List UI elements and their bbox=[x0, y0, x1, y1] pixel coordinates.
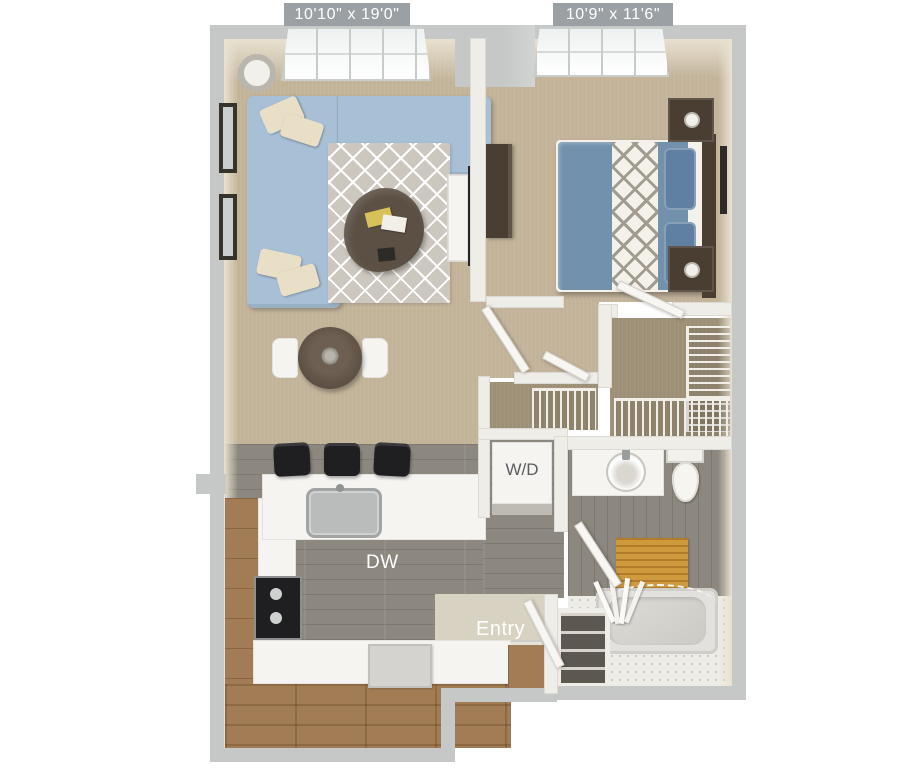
nightstand-icon bbox=[668, 98, 714, 142]
floor-plan: 10'10" x 19'0" 10'9" x 11'6" bbox=[0, 0, 921, 768]
kitchen-sink-icon bbox=[306, 488, 382, 538]
partition-bathroom-west bbox=[554, 436, 568, 532]
living-room-window-icon bbox=[281, 27, 431, 81]
bar-stool-icon bbox=[273, 445, 311, 477]
exterior-wall-bottom-bath bbox=[551, 686, 746, 700]
dishwasher-label: DW bbox=[366, 552, 399, 574]
centerpiece-icon bbox=[320, 346, 340, 366]
wall-column-top-center bbox=[455, 25, 535, 87]
nightstand-icon bbox=[668, 246, 714, 292]
left-wall-pilaster bbox=[196, 474, 226, 494]
bar-stool-icon bbox=[373, 445, 411, 477]
wire-shelf-icon bbox=[614, 398, 730, 436]
entry-label: Entry bbox=[476, 618, 525, 641]
dining-chair-icon bbox=[272, 338, 298, 378]
burner-icon bbox=[270, 612, 282, 624]
table-lamp-icon bbox=[684, 262, 700, 278]
bed-blanket-foot bbox=[558, 142, 612, 290]
partition-bedroom-bottom bbox=[486, 296, 564, 308]
burner-icon bbox=[270, 588, 282, 600]
bar-stool-icon bbox=[324, 446, 360, 476]
exterior-wall-bottom-entry bbox=[441, 688, 557, 702]
partition-bathroom-north bbox=[564, 436, 732, 450]
washer-dryer-icon: W/D bbox=[492, 442, 552, 504]
partition-living-bedroom bbox=[470, 38, 486, 302]
partition-laundry-left bbox=[478, 376, 490, 518]
stove-icon bbox=[254, 576, 302, 640]
bed-pillow-icon bbox=[664, 148, 696, 210]
faucet-icon bbox=[336, 484, 344, 492]
washer-dryer-label: W/D bbox=[492, 460, 552, 480]
tv-console-icon bbox=[447, 174, 469, 262]
exterior-wall-right bbox=[732, 25, 746, 700]
table-lamp-icon bbox=[684, 112, 700, 128]
bedroom-dimensions-badge: 10'9" x 11'6" bbox=[553, 3, 673, 26]
bed-chevron-runner bbox=[612, 142, 658, 290]
remote-icon bbox=[377, 247, 395, 262]
refrigerator-icon bbox=[368, 644, 432, 688]
living-room-dimensions-badge: 10'10" x 19'0" bbox=[284, 3, 410, 26]
wire-shelf-icon bbox=[532, 388, 596, 430]
washer-ledge bbox=[492, 504, 552, 515]
dresser-icon bbox=[486, 144, 512, 238]
bedroom-window-icon bbox=[533, 27, 669, 77]
partition-closet-left bbox=[598, 304, 612, 388]
left-window-icon bbox=[219, 103, 237, 173]
exterior-wall-bottom-kitchen bbox=[210, 748, 455, 762]
wall-art-icon bbox=[720, 146, 727, 214]
dining-chair-icon bbox=[362, 338, 388, 378]
left-window-icon bbox=[219, 194, 237, 260]
floor-lamp-icon bbox=[238, 54, 276, 92]
